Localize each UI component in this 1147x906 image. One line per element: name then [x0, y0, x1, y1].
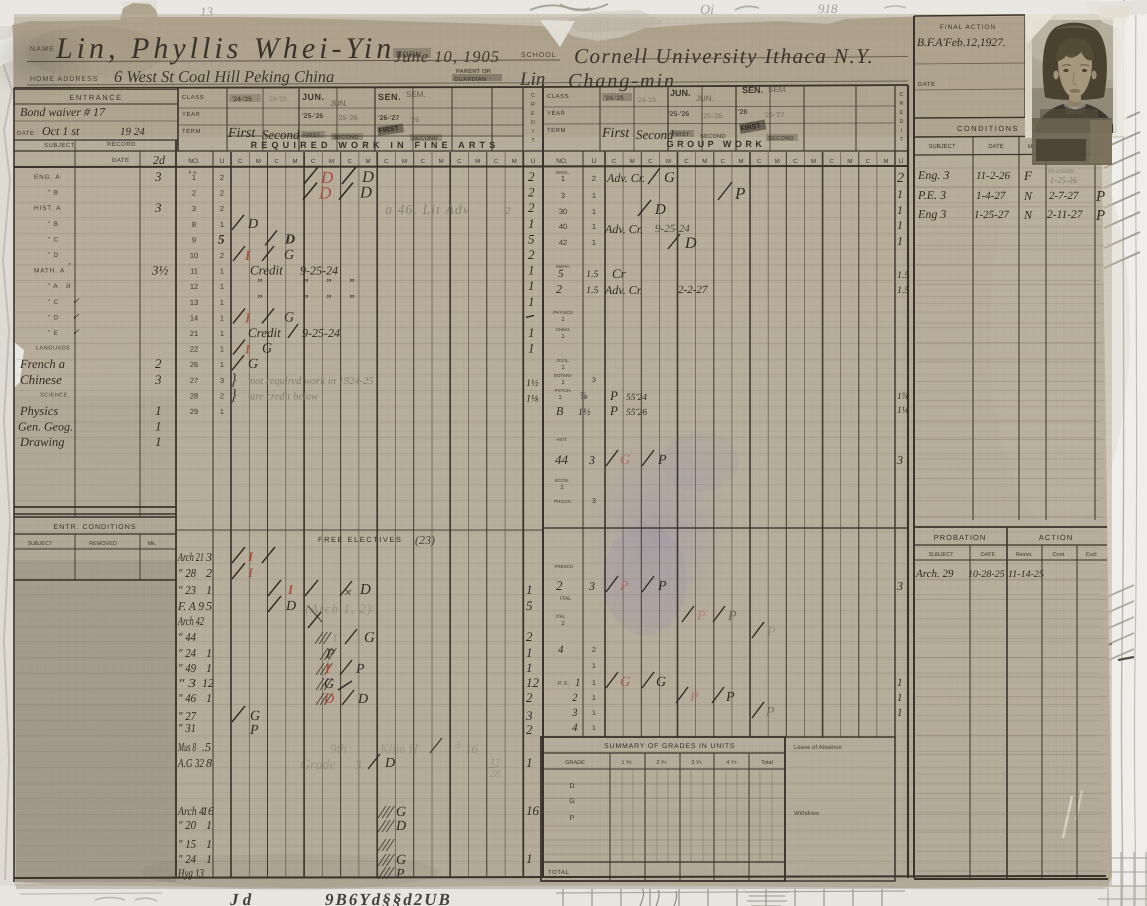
svg-text:JUN.: JUN. — [330, 99, 348, 108]
svg-text:2: 2 — [572, 692, 578, 704]
svg-text:M: M — [847, 158, 852, 165]
svg-text:CHEM.: CHEM. — [556, 327, 571, 332]
svg-text:E: E — [900, 110, 904, 116]
svg-text:16: 16 — [526, 803, 540, 818]
svg-text:3: 3 — [154, 169, 162, 184]
svg-text:P: P — [689, 690, 699, 705]
svg-text:1: 1 — [897, 218, 903, 232]
svg-text:G: G — [284, 310, 294, 325]
svg-text:”: ” — [302, 292, 309, 306]
svg-text:C: C — [900, 92, 904, 98]
svg-text:Mk.: Mk. — [148, 541, 157, 547]
svg-text:⅞: ⅞ — [580, 391, 588, 402]
svg-text:918: 918 — [818, 1, 838, 16]
svg-text:P: P — [727, 609, 737, 624]
svg-text:M: M — [512, 158, 517, 165]
svg-text:4: 4 — [558, 644, 564, 656]
svg-text:14: 14 — [190, 313, 198, 322]
svg-text:1: 1 — [155, 403, 162, 418]
svg-text:D: D — [359, 183, 372, 202]
svg-text:3: 3 — [154, 372, 162, 387]
svg-text:2: 2 — [155, 356, 162, 371]
svg-text:M: M — [329, 158, 334, 165]
svg-text:26: 26 — [190, 360, 198, 369]
svg-text:REMOVED: REMOVED — [89, 541, 117, 547]
svg-text:1: 1 — [528, 341, 535, 356]
svg-text:SUMMARY OF GRADES IN UNITS: SUMMARY OF GRADES IN UNITS — [604, 743, 735, 750]
svg-text:2: 2 — [220, 189, 224, 198]
svg-text:″ 3: ″ 3 — [178, 676, 196, 690]
svg-text:TERM: TERM — [547, 127, 566, 134]
svg-text:Klim H: Klim H — [379, 741, 419, 756]
svg-text:1-4-27: 1-4-27 — [976, 190, 1006, 202]
svg-text:Credit: Credit — [250, 263, 283, 278]
svg-text:Mus 8: Mus 8 — [177, 740, 196, 754]
svg-text:1: 1 — [897, 187, 903, 201]
svg-text:MATH. A: MATH. A — [34, 268, 65, 275]
svg-text:(23): (23) — [415, 533, 435, 547]
svg-text:Eng. 3: Eng. 3 — [917, 168, 949, 182]
svg-text:1: 1 — [526, 660, 533, 675]
svg-text:Eng 3: Eng 3 — [917, 207, 946, 221]
svg-text:” D: ” D — [48, 252, 59, 259]
svg-text:1: 1 — [206, 583, 212, 597]
svg-text:I: I — [324, 661, 331, 676]
svg-text:✓: ✓ — [72, 311, 80, 321]
svg-text:P: P — [619, 579, 629, 594]
svg-text:M: M — [775, 158, 780, 165]
svg-text:YEAR: YEAR — [182, 111, 201, 118]
svg-text:J d: J d — [229, 890, 252, 906]
svg-text:Excl.: Excl. — [1086, 552, 1098, 558]
svg-text:Arch. 29: Arch. 29 — [915, 568, 954, 580]
svg-text:40: 40 — [559, 222, 567, 231]
svg-text:1: 1 — [206, 661, 212, 675]
svg-text:3: 3 — [588, 579, 595, 593]
svg-text:″ 20: ″ 20 — [178, 818, 196, 832]
svg-text:3: 3 — [896, 579, 903, 593]
svg-text:PHILOS.: PHILOS. — [554, 499, 572, 504]
svg-text:SUBJECT: SUBJECT — [44, 142, 75, 149]
svg-text:SEM.: SEM. — [768, 85, 788, 94]
svg-text:3: 3 — [220, 376, 224, 385]
svg-text:”: ” — [256, 292, 263, 306]
svg-text:G: G — [364, 630, 375, 646]
svg-text:C: C — [684, 158, 689, 165]
svg-text:Bond waiver # 17: Bond waiver # 17 — [20, 105, 106, 119]
svg-text:1⅞: 1⅞ — [897, 392, 909, 402]
svg-text:FREE ELECTIVES: FREE ELECTIVES — [318, 535, 402, 544]
svg-text:9B6Yd§§d2UB: 9B6Yd§§d2UB — [325, 890, 452, 906]
svg-text:M: M — [811, 158, 816, 165]
svg-text:D: D — [654, 202, 666, 218]
svg-text:CONDITIONS: CONDITIONS — [957, 124, 1019, 133]
svg-text:C: C — [793, 158, 798, 165]
svg-text:1.5: 1.5 — [586, 285, 599, 296]
svg-text:1: 1 — [220, 407, 224, 416]
svg-text:1: 1 — [206, 818, 212, 832]
svg-text:ii: ii — [66, 281, 70, 290]
svg-text:M: M — [884, 158, 889, 165]
svg-text:GROUP WORK: GROUP WORK — [667, 139, 766, 149]
svg-text:DATE: DATE — [981, 552, 996, 558]
svg-text:P: P — [395, 867, 405, 882]
svg-text:P: P — [657, 579, 667, 594]
svg-text:SCIENCE: SCIENCE — [40, 392, 68, 398]
svg-text:D: D — [395, 819, 406, 834]
svg-text:1: 1 — [528, 294, 535, 309]
svg-text:U: U — [592, 158, 597, 165]
svg-text:3: 3 — [588, 453, 595, 467]
svg-text:Adv. Cr.: Adv. Cr. — [604, 222, 643, 236]
svg-text:E: E — [531, 111, 535, 117]
svg-text:2-7-27: 2-7-27 — [1049, 190, 1079, 202]
svg-text:D: D — [531, 120, 535, 126]
svg-text:Arch 21: Arch 21 — [177, 550, 204, 564]
svg-text:N: N — [1023, 208, 1033, 222]
svg-text:1½: 1½ — [526, 378, 539, 389]
svg-text:G: G — [396, 805, 406, 820]
svg-text:D: D — [247, 217, 258, 232]
svg-text:A.G 32: A.G 32 — [177, 756, 204, 770]
svg-text:C: C — [457, 158, 462, 165]
svg-text:2: 2 — [592, 174, 596, 183]
svg-text:'26: '26 — [410, 117, 419, 124]
svg-text:✓: ✓ — [72, 296, 80, 306]
svg-text:22: 22 — [190, 345, 198, 354]
svg-text:'25-'26: '25-'26 — [337, 115, 358, 122]
svg-text:G: G — [664, 170, 675, 186]
svg-text:D: D — [384, 756, 395, 771]
svg-text:″ 24: ″ 24 — [178, 852, 196, 866]
svg-text:P: P — [696, 609, 706, 624]
svg-text:2: 2 — [897, 171, 904, 186]
svg-text:2: 2 — [528, 169, 535, 184]
svg-text:″ 15: ″ 15 — [178, 837, 196, 851]
svg-text:SCHOOL: SCHOOL — [521, 52, 557, 59]
svg-text:re-exam: re-exam — [1048, 166, 1074, 175]
svg-text:D: D — [285, 599, 296, 614]
svg-text:G: G — [620, 675, 630, 690]
svg-text:}: } — [230, 385, 237, 404]
svg-text:1: 1 — [575, 677, 581, 689]
svg-text:6 West St Coal Hill Peking Chi: 6 West St Coal Hill Peking China — [114, 67, 334, 86]
svg-text:C: C — [421, 158, 426, 165]
svg-text:30: 30 — [559, 207, 567, 216]
svg-text:21: 21 — [190, 329, 198, 338]
svg-text:F. A 9: F. A 9 — [177, 599, 204, 613]
svg-text:P: P — [325, 647, 335, 662]
svg-text:June 10, 1905: June 10, 1905 — [394, 47, 500, 66]
svg-text:CLASS: CLASS — [182, 94, 204, 101]
svg-text:Arch 42: Arch 42 — [177, 614, 204, 628]
svg-text:9-25-24: 9-25-24 — [655, 223, 690, 235]
svg-text:2: 2 — [526, 629, 533, 644]
svg-text:F: F — [1023, 168, 1033, 183]
svg-text:I: I — [287, 582, 294, 597]
svg-text:28: 28 — [490, 769, 500, 780]
svg-text:” C: ” C — [48, 236, 59, 243]
svg-text:Total: Total — [761, 760, 773, 766]
svg-text:M: M — [256, 158, 261, 165]
svg-text:12: 12 — [202, 676, 214, 690]
svg-text:P. E.: P. E. — [558, 681, 570, 687]
svg-text:1: 1 — [220, 329, 224, 338]
svg-text:HIST.: HIST. — [556, 437, 567, 442]
svg-text:HOME ADDRESS: HOME ADDRESS — [30, 76, 98, 83]
svg-text:” C: ” C — [48, 299, 59, 306]
svg-text:1.5: 1.5 — [897, 270, 910, 281]
svg-text:RECORD: RECORD — [107, 141, 136, 148]
svg-text:ITAL.: ITAL. — [560, 596, 573, 602]
svg-text:U: U — [899, 158, 904, 165]
svg-text:″ 31: ″ 31 — [178, 721, 196, 735]
svg-text:are credit below: are credit below — [250, 391, 318, 402]
svg-text:'24-'25: '24-'25 — [268, 96, 287, 103]
svg-text:2: 2 — [592, 647, 596, 654]
svg-text:SEM.: SEM. — [406, 90, 426, 99]
svg-text:NAME: NAME — [30, 46, 55, 53]
svg-text:SEN.: SEN. — [378, 92, 401, 102]
svg-text:P: P — [766, 625, 776, 640]
svg-text:Lin, Phyllis Whei-Yin: Lin, Phyllis Whei-Yin — [55, 32, 395, 65]
svg-text:19 24: 19 24 — [120, 126, 145, 138]
svg-text:CLASS: CLASS — [547, 93, 569, 100]
svg-text:M: M — [439, 158, 444, 165]
svg-text:First: First — [227, 126, 256, 141]
svg-text:1: 1 — [155, 434, 162, 449]
svg-text:Credit: Credit — [248, 325, 281, 340]
svg-text:3: 3 — [571, 707, 578, 719]
svg-text:First: First — [601, 126, 630, 141]
svg-text:″ 24: ″ 24 — [178, 646, 196, 660]
svg-text:5: 5 — [528, 231, 535, 246]
svg-text:G: G — [656, 675, 666, 690]
svg-text:28: 28 — [190, 391, 198, 400]
svg-text:11: 11 — [190, 267, 198, 276]
svg-text:2: 2 — [220, 173, 224, 182]
svg-text:G: G — [284, 248, 294, 263]
svg-text:D: D — [900, 119, 904, 125]
svg-text:G: G — [324, 677, 334, 692]
svg-text:DATE: DATE — [112, 157, 130, 164]
svg-text:2d: 2d — [153, 153, 166, 167]
svg-text:JUN.: JUN. — [696, 94, 714, 103]
svg-text:44: 44 — [555, 452, 569, 467]
svg-text:D: D — [359, 582, 371, 598]
svg-text:1: 1 — [220, 220, 224, 229]
svg-text:8: 8 — [206, 756, 212, 770]
svg-text:2: 2 — [206, 566, 212, 580]
svg-text:1: 1 — [220, 282, 224, 291]
svg-text:1: 1 — [206, 837, 212, 851]
svg-text:R: R — [900, 101, 904, 107]
svg-text:Chang-min: Chang-min — [568, 70, 676, 92]
svg-text:'25-'26: '25-'26 — [668, 111, 689, 118]
svg-text:P: P — [1095, 189, 1105, 205]
svg-text:27: 27 — [190, 376, 198, 385]
svg-text:9th: 9th — [330, 741, 347, 756]
svg-text:11-2-26: 11-2-26 — [976, 170, 1011, 182]
svg-text:Gen. Geog.: Gen. Geog. — [18, 420, 73, 434]
svg-text:1: 1 — [526, 851, 533, 866]
svg-text:YEAR: YEAR — [547, 110, 566, 117]
svg-text:1-25-27: 1-25-27 — [974, 209, 1009, 221]
svg-text:1: 1 — [526, 582, 533, 597]
svg-text:SUBJECT: SUBJECT — [27, 541, 53, 547]
svg-text:'25-'26: '25-'26 — [702, 113, 723, 120]
svg-text:3: 3 — [205, 550, 212, 564]
svg-text:not required work in 1924-25: not required work in 1924-25 — [250, 376, 373, 387]
svg-text:REQUIRED WORK IN FINE ARTS: REQUIRED WORK IN FINE ARTS — [251, 140, 500, 150]
svg-text:5: 5 — [206, 599, 212, 613]
svg-text:2: 2 — [526, 722, 533, 737]
svg-text:5: 5 — [218, 231, 225, 246]
svg-text:1: 1 — [592, 680, 596, 687]
svg-text:1½: 1½ — [578, 407, 591, 418]
svg-text:ACTION: ACTION — [1039, 533, 1073, 542]
svg-text:PROBATION: PROBATION — [934, 533, 987, 542]
svg-text:Drawing: Drawing — [19, 435, 64, 449]
svg-text:10: 10 — [190, 251, 198, 260]
svg-text:D: D — [357, 692, 368, 707]
svg-text:2: 2 — [505, 205, 511, 217]
svg-text:D: D — [323, 692, 334, 707]
svg-text:'25-'26: '25-'26 — [302, 113, 323, 120]
svg-text:55'26: 55'26 — [626, 408, 647, 418]
svg-text:16: 16 — [465, 741, 479, 756]
svg-text:P: P — [570, 815, 575, 822]
svg-text:1: 1 — [206, 691, 212, 705]
svg-text:1: 1 — [220, 267, 224, 276]
svg-text:C: C — [648, 158, 653, 165]
svg-text:3: 3 — [192, 204, 196, 213]
svg-text:ITAL.: ITAL. — [556, 614, 566, 619]
svg-text:1: 1 — [592, 663, 596, 670]
svg-text:1: 1 — [220, 298, 224, 307]
svg-text:I: I — [244, 342, 251, 357]
svg-text:Cr: Cr — [612, 266, 627, 281]
svg-text:C: C — [311, 158, 316, 165]
svg-text:P: P — [249, 723, 259, 738]
svg-text:1: 1 — [526, 645, 533, 660]
svg-text:C: C — [238, 158, 243, 165]
svg-text:”: ” — [256, 276, 263, 290]
svg-text:1: 1 — [206, 852, 212, 866]
svg-text:SUBJECT: SUBJECT — [928, 552, 954, 558]
svg-text:HIST. A: HIST. A — [34, 205, 61, 212]
svg-text:C: C — [494, 158, 499, 165]
svg-text:10-28-25: 10-28-25 — [968, 569, 1005, 580]
svg-text:TERM: TERM — [182, 128, 201, 135]
svg-text:2: 2 — [528, 247, 535, 262]
svg-text:Adv. Cr.: Adv. Cr. — [606, 171, 645, 185]
svg-text:1 Yr.: 1 Yr. — [621, 760, 633, 766]
svg-text:Oct 1 st: Oct 1 st — [42, 124, 80, 138]
svg-text:ENTR. CONDITIONS: ENTR. CONDITIONS — [54, 524, 137, 531]
svg-text:1: 1 — [155, 419, 162, 434]
svg-text:P: P — [734, 184, 745, 203]
svg-text:JUN.: JUN. — [670, 88, 691, 98]
svg-text:'26-'27: '26-'27 — [378, 115, 399, 122]
svg-text:Leave of Absence: Leave of Absence — [794, 744, 842, 751]
svg-text:1: 1 — [897, 203, 903, 217]
svg-text:P: P — [657, 453, 667, 468]
svg-text:1: 1 — [897, 677, 903, 689]
svg-text:”: ” — [325, 292, 332, 306]
svg-text:G: G — [248, 357, 258, 372]
svg-text:PSYCH.: PSYCH. — [555, 388, 572, 393]
svg-text:G: G — [250, 709, 260, 724]
svg-text:″ 28: ″ 28 — [178, 566, 196, 580]
svg-text:I: I — [247, 549, 254, 564]
svg-text:DATE: DATE — [918, 81, 936, 88]
svg-text:C: C — [866, 158, 871, 165]
svg-text:P: P — [355, 662, 365, 677]
svg-text:4 Yr.: 4 Yr. — [726, 760, 738, 766]
svg-text:13: 13 — [190, 298, 198, 307]
svg-text:1: 1 — [592, 725, 596, 732]
svg-text:SEN.: SEN. — [742, 85, 763, 95]
svg-text:B: B — [556, 404, 564, 418]
svg-text:3: 3 — [592, 498, 596, 505]
svg-text:M: M — [666, 158, 671, 165]
svg-text:2: 2 — [528, 185, 535, 200]
svg-text:C: C — [531, 93, 535, 99]
svg-text:M: M — [366, 158, 371, 165]
svg-text:✓: ✓ — [72, 327, 80, 337]
svg-text:4: 4 — [572, 722, 578, 734]
svg-text:M: M — [702, 158, 707, 165]
svg-text:ENTRANCE: ENTRANCE — [69, 93, 122, 102]
svg-text:2: 2 — [220, 251, 224, 260]
svg-text:I: I — [247, 565, 254, 580]
svg-text:DATE: DATE — [988, 143, 1004, 150]
svg-text:Arch 4: Arch 4 — [177, 804, 204, 818]
svg-text:2: 2 — [526, 690, 533, 705]
svg-text:JUN.: JUN. — [302, 92, 325, 102]
svg-text:B.F.A'Feb.12,1927.: B.F.A'Feb.12,1927. — [917, 37, 1006, 49]
svg-text:11-14-25: 11-14-25 — [1008, 569, 1044, 580]
svg-text:G: G — [396, 853, 406, 868]
svg-text:1.5: 1.5 — [897, 285, 910, 296]
svg-text:2: 2 — [556, 578, 563, 593]
svg-text:Adv. Cr.: Adv. Cr. — [604, 283, 643, 297]
svg-text:SUBJECT: SUBJECT — [928, 143, 956, 150]
svg-text:Reinst.: Reinst. — [1015, 552, 1033, 558]
svg-text:C: C — [348, 158, 353, 165]
svg-text:” B: ” B — [48, 190, 59, 197]
svg-text:P: P — [765, 705, 775, 720]
svg-text:16: 16 — [202, 804, 214, 818]
svg-text:1: 1 — [220, 345, 224, 354]
svg-text:12: 12 — [526, 675, 540, 690]
svg-text:” A: ” A — [48, 283, 58, 290]
svg-text:U: U — [220, 158, 225, 165]
svg-text:2-11-27: 2-11-27 — [1047, 209, 1084, 221]
svg-text:3: 3 — [154, 200, 162, 215]
svg-text:” D: ” D — [48, 314, 59, 321]
svg-text:PARENT OR: PARENT OR — [456, 68, 492, 75]
svg-text:ECON.: ECON. — [555, 478, 569, 483]
svg-text:R: R — [531, 102, 535, 108]
svg-text:2: 2 — [528, 200, 535, 215]
svg-text:1-25-26: 1-25-26 — [1050, 175, 1078, 185]
svg-text:3: 3 — [354, 757, 362, 772]
svg-text:1: 1 — [220, 360, 224, 369]
svg-text:1: 1 — [592, 695, 596, 702]
svg-text:” B: ” B — [48, 221, 59, 228]
